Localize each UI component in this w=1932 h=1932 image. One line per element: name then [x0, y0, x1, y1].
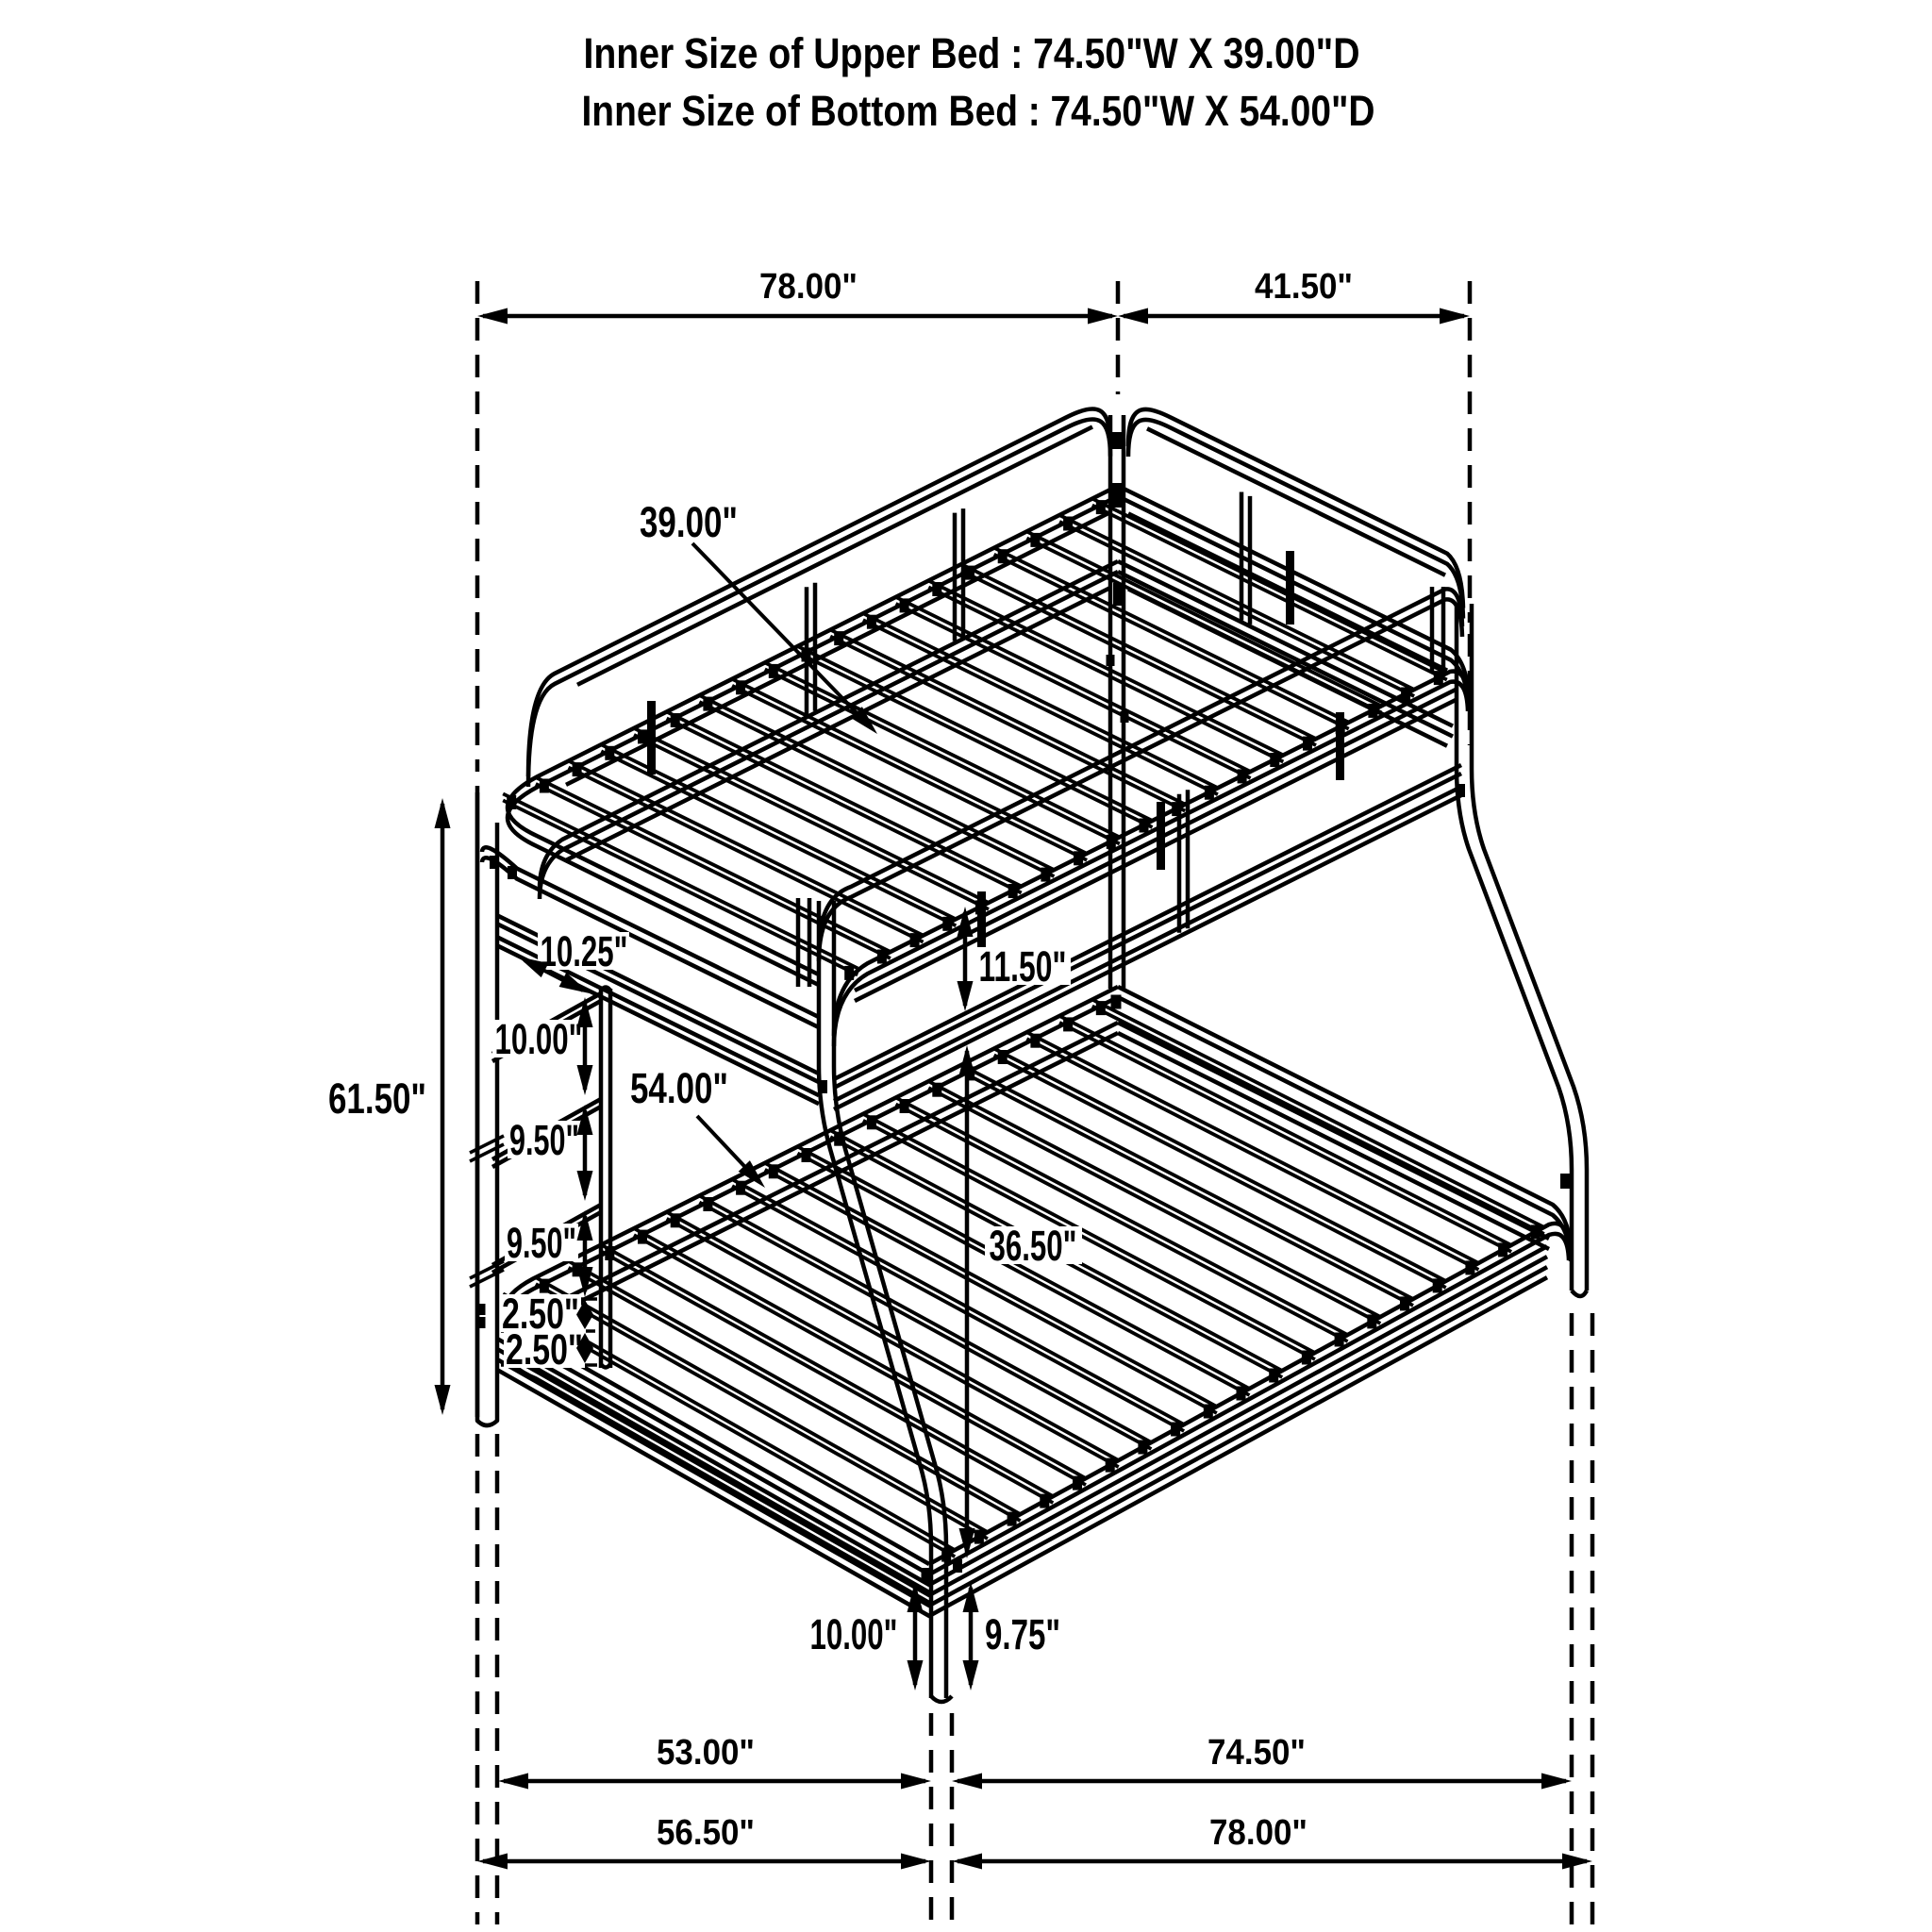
svg-text:56.50": 56.50" — [657, 1813, 755, 1853]
svg-text:36.50": 36.50" — [990, 1222, 1077, 1270]
svg-text:78.00": 78.00" — [759, 267, 858, 307]
svg-text:9.75": 9.75" — [985, 1610, 1060, 1658]
svg-text:Inner Size of Bottom Bed : 74.: Inner Size of Bottom Bed : 74.50"W X 54.… — [582, 87, 1375, 135]
svg-text:Inner Size of Upper Bed : 74.5: Inner Size of Upper Bed : 74.50"W X 39.0… — [584, 29, 1360, 77]
svg-text:10.00": 10.00" — [810, 1610, 898, 1658]
svg-text:54.00": 54.00" — [630, 1064, 728, 1112]
svg-text:41.50": 41.50" — [1255, 267, 1353, 307]
svg-text:10.25": 10.25" — [541, 927, 628, 975]
svg-text:61.50": 61.50" — [328, 1074, 426, 1123]
svg-text:78.00": 78.00" — [1209, 1813, 1307, 1853]
svg-text:74.50": 74.50" — [1207, 1733, 1306, 1773]
svg-text:39.00": 39.00" — [640, 498, 738, 546]
svg-text:10.00": 10.00" — [495, 1015, 583, 1063]
svg-text:9.50": 9.50" — [507, 1219, 576, 1267]
svg-text:2.50": 2.50" — [506, 1325, 583, 1374]
svg-text:11.50": 11.50" — [979, 942, 1067, 991]
svg-text:53.00": 53.00" — [657, 1733, 755, 1773]
svg-text:9.50": 9.50" — [509, 1116, 579, 1164]
